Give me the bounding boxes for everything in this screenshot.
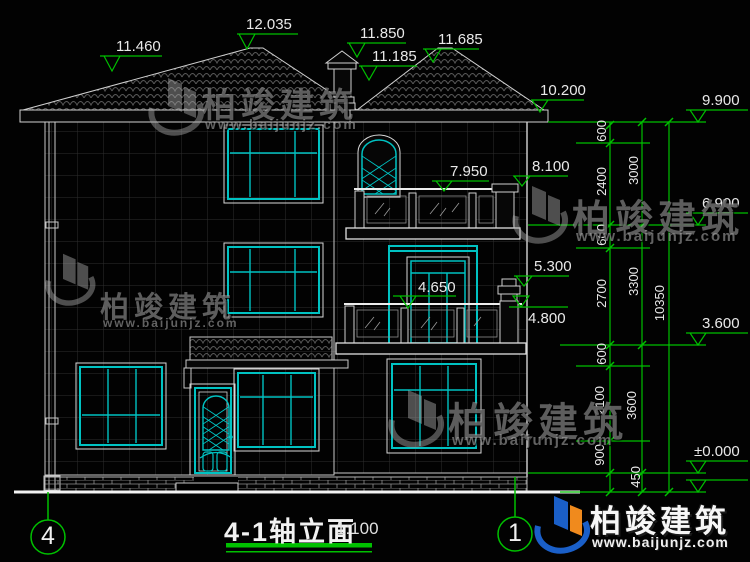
elevation-drawing-sheet: 11.460 12.035 11.850 11.185 11.685 10.20… bbox=[0, 0, 750, 562]
elevation-label-ridge-right: 11.685 bbox=[438, 31, 483, 48]
elevation-label-pillar-3f: 8.100 bbox=[532, 158, 570, 175]
watermark-url: www.baijunjz.com bbox=[576, 228, 737, 245]
elevation-label-chimney-base: 11.185 bbox=[372, 48, 417, 65]
brand-logo-icon bbox=[537, 496, 587, 551]
dim-label: 3000 bbox=[626, 156, 641, 185]
brand-url: www.baijunjz.com bbox=[592, 534, 729, 550]
elevation-label-parapet: 9.900 bbox=[702, 92, 740, 109]
elevation-label-floor-2f: 3.600 bbox=[702, 315, 740, 332]
elevation-label-chimney-top: 11.850 bbox=[360, 25, 405, 42]
watermark-url: www.baijunjz.com bbox=[205, 116, 358, 132]
elevation-label-rail-2f: 4.800 bbox=[528, 310, 566, 327]
elevation-label-eave-right: 10.200 bbox=[540, 82, 586, 99]
elevation-label-eave-left: 11.460 bbox=[116, 38, 161, 55]
dim-label: 3300 bbox=[626, 267, 641, 296]
dim-label: 600 bbox=[594, 120, 609, 142]
axis-bubble-right: 1 bbox=[497, 519, 533, 548]
elevation-label-ground: ±0.000 bbox=[694, 443, 740, 460]
right-eave bbox=[350, 110, 548, 122]
dim-label: 450 bbox=[628, 466, 643, 488]
elevation-label-ridge-main: 12.035 bbox=[246, 16, 292, 33]
dim-label: 10350 bbox=[652, 285, 667, 321]
watermark-url: www.baijunjz.com bbox=[103, 316, 239, 330]
elevation-label-pillar-2f: 5.300 bbox=[534, 258, 572, 275]
dim-label: 600 bbox=[594, 343, 609, 365]
elevation-label-window-2f: 4.650 bbox=[418, 279, 456, 296]
elevation-label-rail-3f: 7.950 bbox=[450, 163, 488, 180]
drawing-scale: 1:100 bbox=[336, 519, 379, 539]
watermark-url: www.baijunjz.com bbox=[452, 432, 613, 449]
axis-bubble-left: 4 bbox=[30, 522, 66, 551]
dim-label: 2700 bbox=[594, 279, 609, 308]
plinth bbox=[45, 477, 527, 492]
